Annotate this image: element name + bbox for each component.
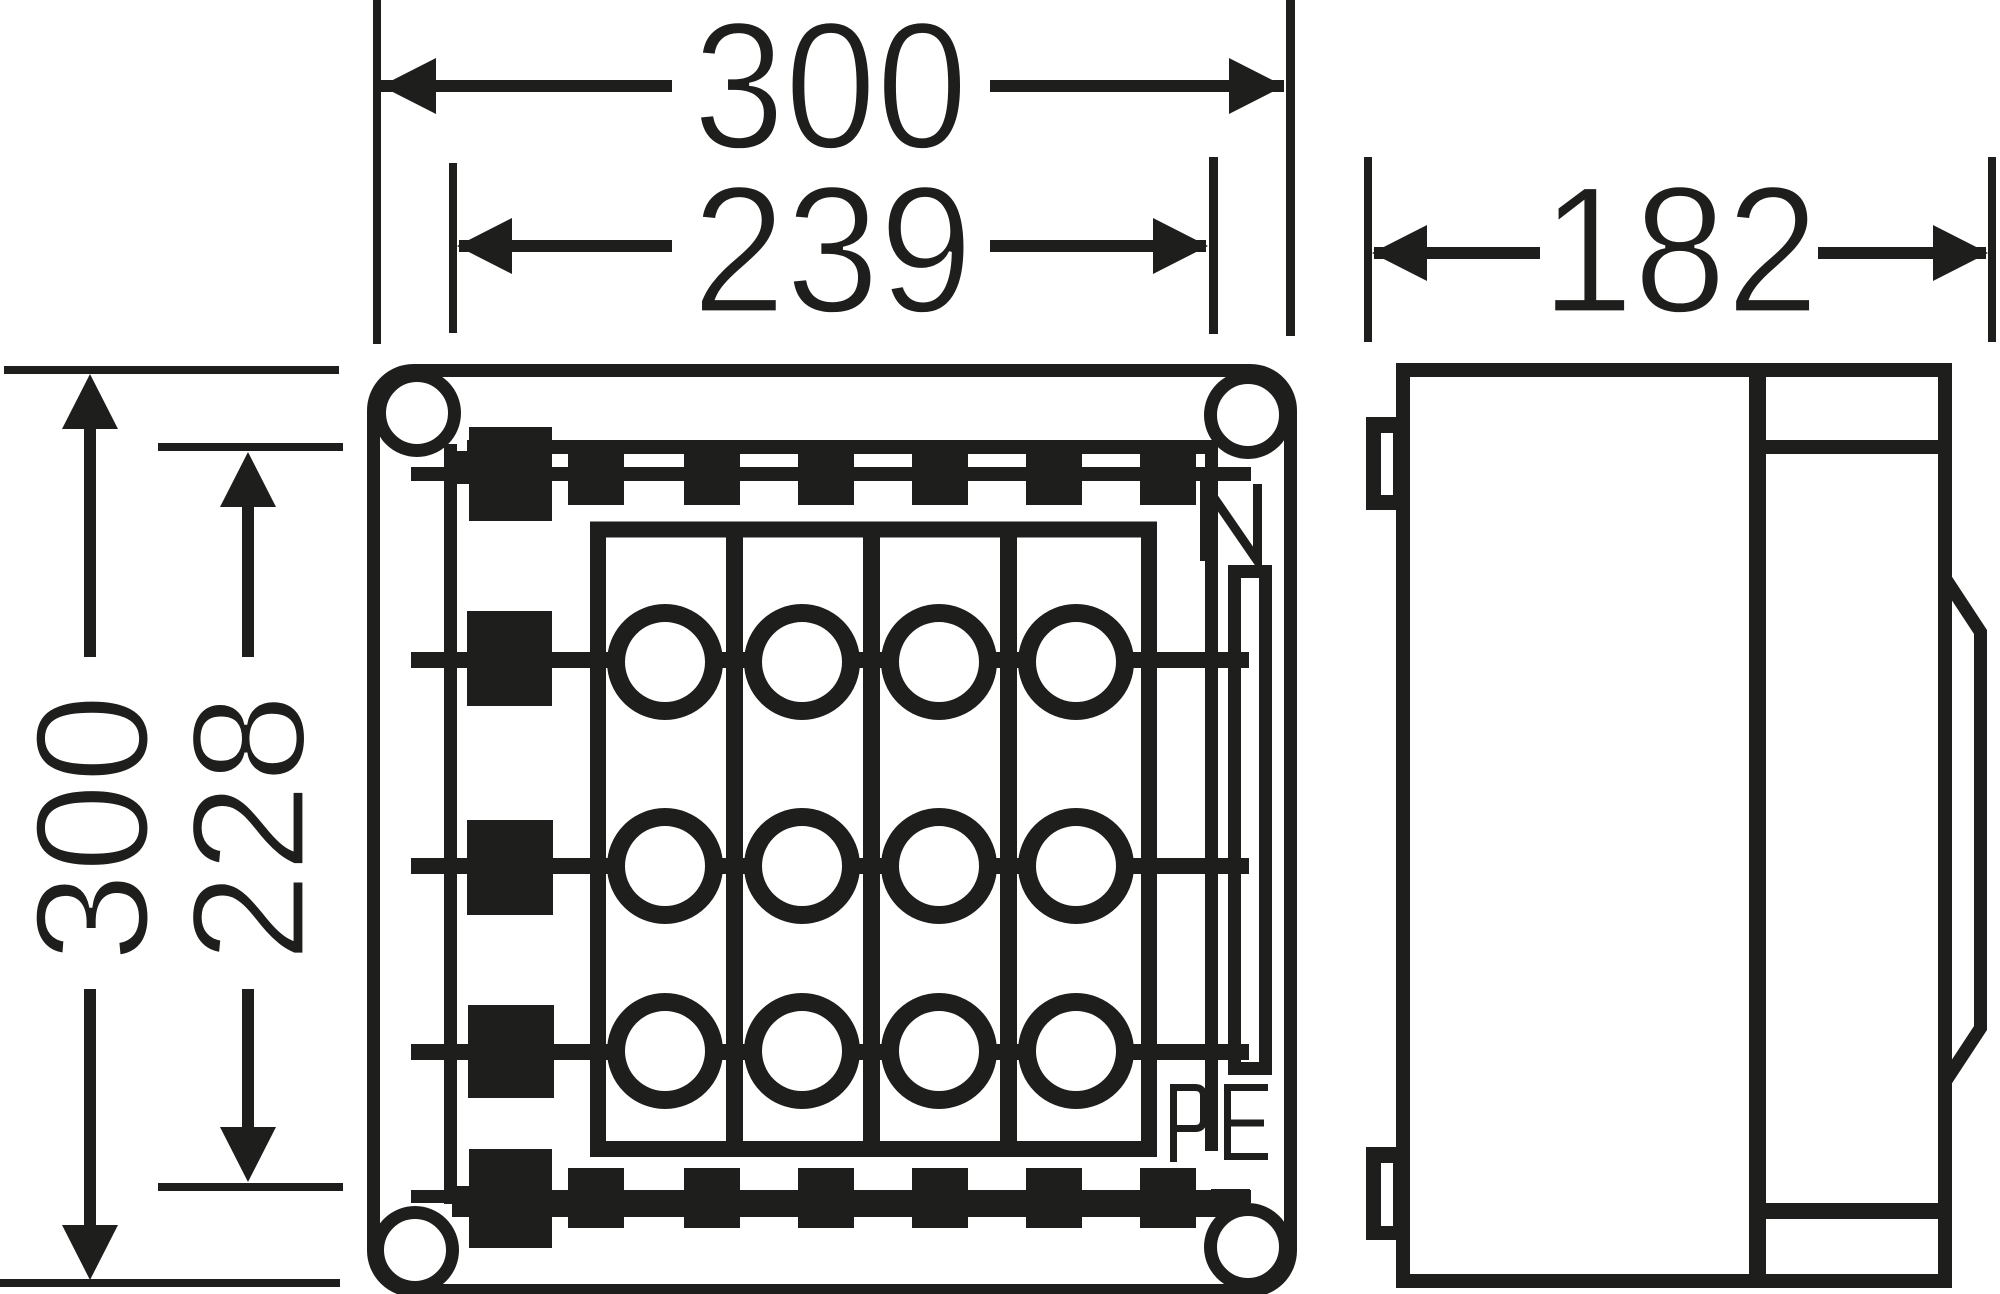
svg-text:182: 182 (1541, 149, 1819, 351)
svg-text:239: 239 (692, 149, 973, 351)
svg-text:300: 300 (3, 694, 183, 963)
svg-text:228: 228 (159, 694, 339, 963)
